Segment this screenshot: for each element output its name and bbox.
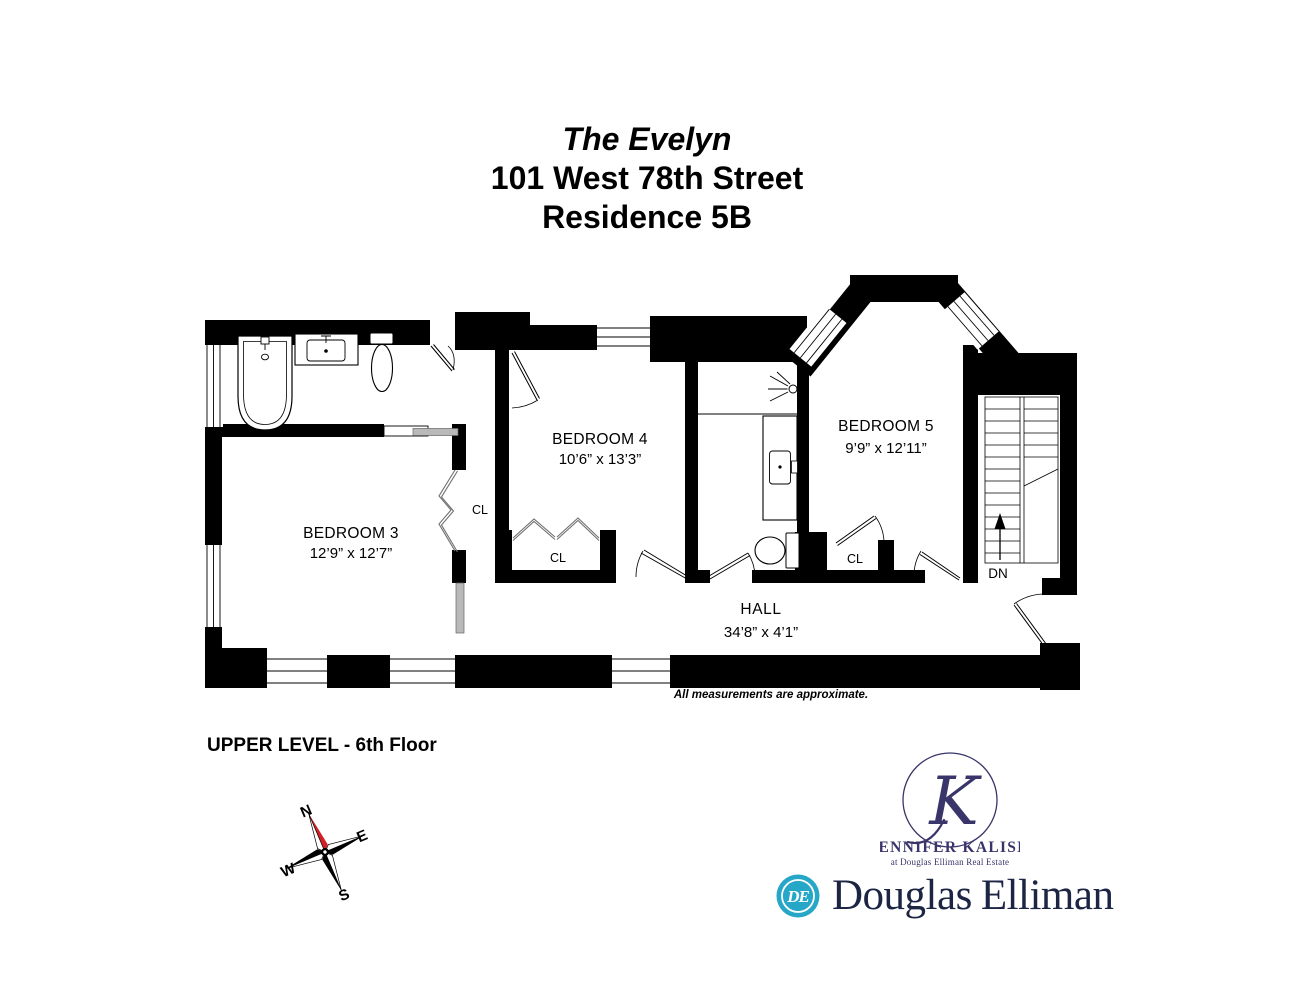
brand-monogram-circle: DE <box>775 873 821 919</box>
vanity2-sink-icon <box>763 416 798 520</box>
brand-monogram: DE <box>786 887 809 906</box>
room-label-bedroom4: BEDROOM 4 <box>552 431 648 448</box>
compass-rose: N E S W <box>270 795 380 910</box>
toilet-icon <box>370 333 393 392</box>
closet3-bifold <box>439 470 458 552</box>
bathroom2-door <box>709 553 755 579</box>
building-name: The Evelyn <box>0 120 1294 159</box>
brand-word1: Douglas <box>832 872 972 920</box>
vanity-sink-icon <box>295 334 358 365</box>
room-dims-bedroom5: 9’9” x 12’11” <box>845 440 926 457</box>
stairs <box>985 397 1058 563</box>
brand-word2: Elliman <box>981 872 1114 920</box>
window-bottom-2 <box>390 655 455 688</box>
agent-monogram: K <box>928 763 982 840</box>
compass-n: N <box>298 802 315 822</box>
room-label-hall: HALL <box>740 601 781 618</box>
room-dims-bedroom3: 12’9” x 12’7” <box>310 545 393 562</box>
closet-label-bedroom5: CL <box>847 552 863 566</box>
window-bottom-1 <box>267 655 327 688</box>
level-label: UPPER LEVEL - 6th Floor <box>207 735 437 757</box>
room-dims-hall: 34’8” x 4’1” <box>724 624 798 641</box>
hall-entry-door <box>1014 594 1047 646</box>
title-block: The Evelyn 101 West 78th Street Residenc… <box>0 120 1294 237</box>
bedroom3-pocket-door <box>456 583 464 633</box>
room-label-bedroom5: BEDROOM 5 <box>838 418 934 435</box>
closet-label-bedroom4: CL <box>550 551 566 565</box>
floor-plan: BEDROOM 3 12’9” x 12’7” BEDROOM 4 10’6” … <box>200 268 1080 710</box>
room-label-bedroom3: BEDROOM 3 <box>303 525 399 542</box>
bathtub-icon <box>238 336 292 430</box>
agent-tagline: at Douglas Elliman Real Estate <box>891 857 1009 867</box>
closet-label-bedroom3: CL <box>472 503 488 517</box>
address-line: 101 West 78th Street <box>0 159 1294 198</box>
compass-s: S <box>336 886 352 906</box>
bedroom4-entry-door <box>512 352 540 409</box>
compass-e: E <box>354 827 370 847</box>
brand-logo: DE Douglas Elliman <box>775 872 1113 920</box>
residence-line: Residence 5B <box>0 198 1294 237</box>
closet4-bifold <box>513 518 599 541</box>
window-bottom-3 <box>612 655 670 688</box>
doors <box>431 345 1047 647</box>
window-left-bedroom3 <box>204 545 223 627</box>
measurements-note: All measurements are approximate. <box>673 689 868 701</box>
agent-name: JENNIFER KALISH <box>880 839 1020 856</box>
agent-logo: K JENNIFER KALISH at Douglas Elliman Rea… <box>880 748 1020 874</box>
window-top <box>597 325 650 350</box>
closet5-door <box>836 516 884 546</box>
toilet2-icon <box>755 533 799 568</box>
room-dims-bedroom4: 10’6” x 13’3” <box>559 451 642 468</box>
window-left-bath <box>204 345 223 427</box>
stairs-down-label: DN <box>988 566 1008 581</box>
bifold-doors <box>439 470 599 552</box>
bedroom4-hall-door <box>636 550 687 579</box>
bathroom-door <box>431 345 455 372</box>
